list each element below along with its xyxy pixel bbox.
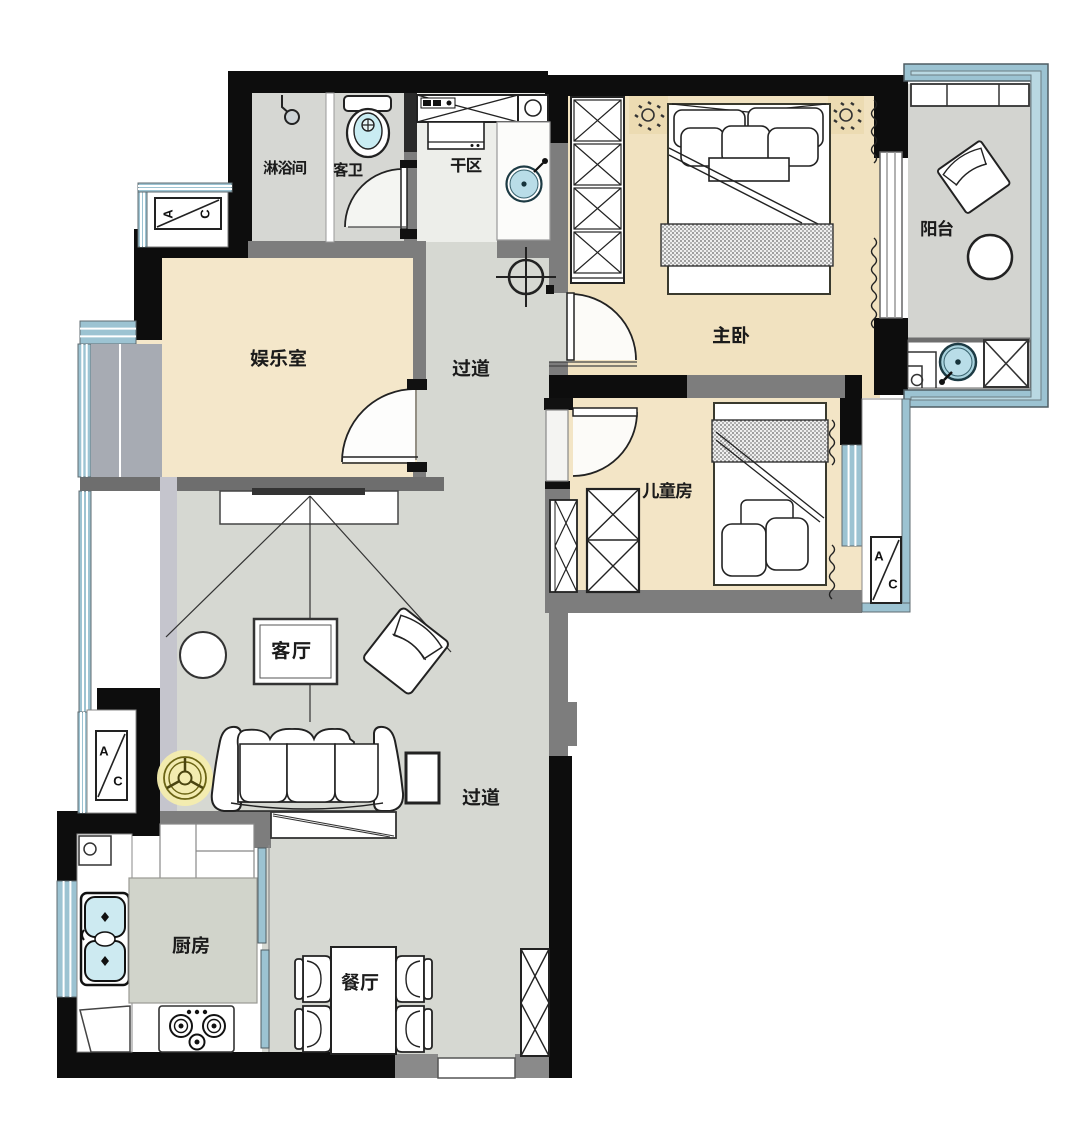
svg-text:A: A [99,743,109,758]
svg-text:C: C [113,773,123,788]
svg-text:A: A [160,209,175,219]
svg-text:C: C [197,209,212,219]
svg-text:A: A [874,548,884,563]
svg-text:C: C [888,576,898,591]
